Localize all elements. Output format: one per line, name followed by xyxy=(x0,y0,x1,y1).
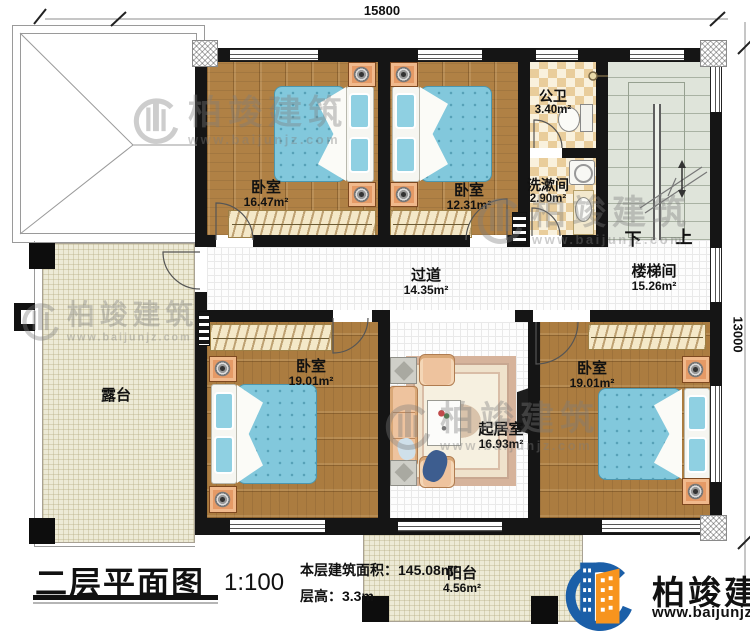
window xyxy=(710,248,722,302)
section-marker xyxy=(14,303,35,331)
wall-corridor-top-d xyxy=(562,235,608,247)
lamp-icon xyxy=(214,491,231,508)
window xyxy=(710,386,722,482)
room-area: 16.47m² xyxy=(234,196,298,209)
stair-up-label: 上 xyxy=(672,229,696,247)
window xyxy=(536,49,578,61)
stair-rail xyxy=(653,104,661,240)
dimension-height: 13000 xyxy=(731,305,746,365)
pillow xyxy=(687,437,707,473)
terrace-rail-bottom xyxy=(34,546,195,547)
pillow xyxy=(687,395,707,431)
floor-area-value: 145.08m² xyxy=(398,562,458,578)
wall-bed1-bed2 xyxy=(378,60,390,240)
wall-bed2-bath xyxy=(518,60,530,235)
room-label-corridor: 过道 14.35m² xyxy=(392,268,460,296)
floor-height-value: 3.3m xyxy=(342,588,374,604)
room-name: 过道 xyxy=(392,268,460,284)
toilet-tank xyxy=(580,104,593,132)
wardrobe xyxy=(228,210,376,238)
terrace-door-opening xyxy=(195,247,207,292)
wall-corridor-bottom-b xyxy=(372,310,390,322)
floor-height-row: 层高：3.3m xyxy=(300,586,374,606)
brand-website: www.baijunjz.com xyxy=(652,604,750,621)
wall-corridor-bottom-a xyxy=(207,310,333,322)
room-name: 卧室 xyxy=(234,180,298,196)
lamp-icon xyxy=(214,360,231,377)
lamp-icon xyxy=(395,66,412,83)
dimension-width: 15800 xyxy=(352,3,412,18)
window xyxy=(230,519,325,533)
corner-column-hatch xyxy=(700,515,727,541)
room-area: 15.26m² xyxy=(612,280,696,293)
stair-down-label: 下 xyxy=(620,231,646,249)
armchair xyxy=(419,354,455,386)
wall-corridor-bottom-d xyxy=(590,310,710,322)
wall-corridor-bottom-c xyxy=(515,310,533,322)
room-name: 洗漱间 xyxy=(515,178,581,193)
lamp-icon xyxy=(687,361,704,378)
wall-corridor-top-a xyxy=(207,235,216,247)
room-label-bedroom-bl: 卧室 19.01m² xyxy=(278,359,344,387)
terrace-column-bottom xyxy=(29,518,55,544)
wall-bath-stair xyxy=(596,60,608,240)
wall-corridor-top-b xyxy=(253,235,470,247)
room-label-washroom: 洗漱间 2.90m² xyxy=(515,178,581,205)
room-area: 4.56m² xyxy=(428,582,496,595)
room-area: 12.31m² xyxy=(436,199,502,212)
room-name: 楼梯间 xyxy=(612,264,696,280)
terrace-rail-left xyxy=(34,241,35,547)
plan-scale: 1:100 xyxy=(224,569,284,597)
wardrobe xyxy=(588,324,706,350)
coffee-table xyxy=(427,400,461,446)
side-table xyxy=(390,357,417,384)
pillow xyxy=(214,392,234,430)
column-striped xyxy=(512,212,527,245)
wall-bath-wash xyxy=(562,148,596,158)
balcony-sliding-door xyxy=(398,521,502,532)
room-area: 19.01m² xyxy=(278,375,344,388)
room-area: 16.93m² xyxy=(462,438,540,451)
lamp-icon xyxy=(353,186,370,203)
pillow xyxy=(349,93,370,129)
window xyxy=(602,519,705,533)
brand-logo-icon xyxy=(537,556,645,632)
pillow xyxy=(395,137,416,173)
room-area: 2.90m² xyxy=(515,193,581,205)
corner-column-hatch xyxy=(700,40,727,67)
floor-area-row: 本层建筑面积：145.08m² xyxy=(300,560,458,580)
room-area: 3.40m² xyxy=(527,104,579,116)
floor-plan: 卧室 16.47m² 卧室 12.31m² 公卫 3.40m² 洗漱间 2.90… xyxy=(0,0,750,635)
terrace-column-top xyxy=(29,243,55,269)
room-area: 19.01m² xyxy=(558,377,626,390)
window xyxy=(630,49,684,61)
room-label-terrace: 露台 xyxy=(86,388,146,404)
pillow xyxy=(395,93,416,129)
room-name: 公卫 xyxy=(527,89,579,104)
title-underline-thick xyxy=(33,595,218,600)
roof-outline-inner xyxy=(20,33,197,234)
room-label-bedroom-tm: 卧室 12.31m² xyxy=(436,183,502,211)
room-name: 起居室 xyxy=(462,422,540,438)
room-label-bedroom-tl: 卧室 16.47m² xyxy=(234,180,298,208)
lamp-icon xyxy=(687,483,704,500)
pillow xyxy=(349,137,370,173)
floor-area-label: 本层建筑面积： xyxy=(300,562,398,578)
wall-living-right xyxy=(528,322,540,518)
title-underline-thin xyxy=(33,602,218,604)
wardrobe xyxy=(390,210,472,238)
wall-living-left xyxy=(378,322,390,518)
room-label-bedroom-br: 卧室 19.01m² xyxy=(558,361,626,389)
lamp-icon xyxy=(395,186,412,203)
column-striped xyxy=(198,311,210,346)
pillow xyxy=(214,436,234,474)
room-name: 卧室 xyxy=(558,361,626,377)
floor-height-label: 层高： xyxy=(300,588,342,604)
side-table xyxy=(390,460,417,486)
room-name: 露台 xyxy=(86,388,146,404)
room-name: 卧室 xyxy=(278,359,344,375)
window xyxy=(418,49,482,61)
window xyxy=(230,49,318,61)
wardrobe xyxy=(210,324,332,351)
room-label-stairwell: 楼梯间 15.26m² xyxy=(612,264,696,292)
room-area: 14.35m² xyxy=(392,284,460,297)
window xyxy=(710,62,722,112)
room-name: 卧室 xyxy=(436,183,502,199)
room-label-bathroom: 公卫 3.40m² xyxy=(527,89,579,116)
lamp-icon xyxy=(353,66,370,83)
room-label-living: 起居室 16.93m² xyxy=(462,422,540,450)
corner-column-hatch xyxy=(192,40,218,67)
